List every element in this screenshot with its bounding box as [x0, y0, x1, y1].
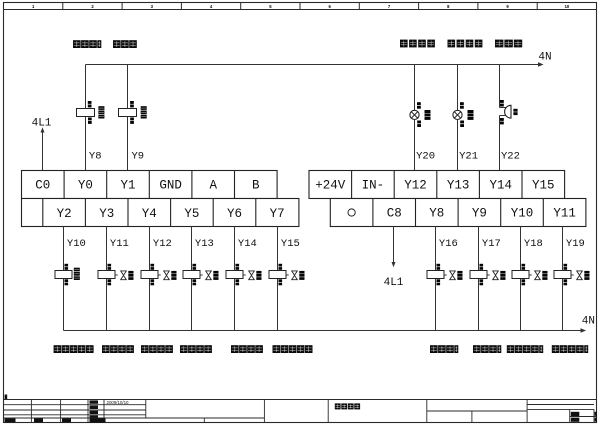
svg-text:Y22: Y22 — [501, 151, 520, 163]
svg-text:Y13: Y13 — [447, 179, 470, 193]
svg-text:Y6: Y6 — [227, 207, 242, 221]
svg-text:Y18: Y18 — [524, 238, 543, 250]
svg-text:Y10: Y10 — [67, 238, 86, 250]
svg-text:Y7: Y7 — [270, 207, 285, 221]
svg-text:Y0: Y0 — [78, 179, 93, 193]
svg-text:Y1: Y1 — [120, 179, 135, 193]
svg-text:Y10: Y10 — [511, 207, 534, 221]
svg-text:C8: C8 — [387, 207, 402, 221]
svg-text:Y14: Y14 — [238, 238, 257, 250]
svg-text:Y12: Y12 — [404, 179, 427, 193]
svg-text:IN-: IN- — [362, 179, 385, 193]
svg-text:GND: GND — [159, 179, 182, 193]
svg-text:C0: C0 — [35, 179, 50, 193]
svg-text:A: A — [209, 179, 217, 193]
svg-text:Y9: Y9 — [132, 151, 145, 163]
svg-text:Y3: Y3 — [99, 207, 114, 221]
svg-text:Y2: Y2 — [57, 207, 72, 221]
svg-text:Y20: Y20 — [416, 151, 435, 163]
svg-text:Y17: Y17 — [482, 238, 501, 250]
svg-text:10: 10 — [565, 4, 570, 9]
svg-text:Y5: Y5 — [184, 207, 199, 221]
svg-text:Y11: Y11 — [110, 238, 129, 250]
svg-text:Y19: Y19 — [566, 238, 585, 250]
svg-text:Y14: Y14 — [489, 179, 512, 193]
svg-text:Y16: Y16 — [439, 238, 458, 250]
svg-text:Y8: Y8 — [89, 151, 102, 163]
svg-text:Y12: Y12 — [153, 238, 172, 250]
svg-text:Y11: Y11 — [553, 207, 576, 221]
svg-text:Y15: Y15 — [281, 238, 300, 250]
svg-text:Y13: Y13 — [195, 238, 214, 250]
svg-text:Y4: Y4 — [142, 207, 157, 221]
svg-text:Y9: Y9 — [472, 207, 487, 221]
svg-text:+24V: +24V — [315, 179, 346, 193]
svg-text:4L1: 4L1 — [32, 118, 52, 130]
svg-text:4L1: 4L1 — [384, 277, 404, 289]
svg-text:Y8: Y8 — [429, 207, 444, 221]
svg-text:B: B — [252, 179, 260, 193]
svg-text:Y15: Y15 — [532, 179, 555, 193]
svg-text:Y21: Y21 — [459, 151, 478, 163]
svg-text:4N: 4N — [538, 52, 551, 64]
svg-text:2009/10/10: 2009/10/10 — [107, 400, 130, 405]
svg-text:4N: 4N — [582, 316, 595, 328]
